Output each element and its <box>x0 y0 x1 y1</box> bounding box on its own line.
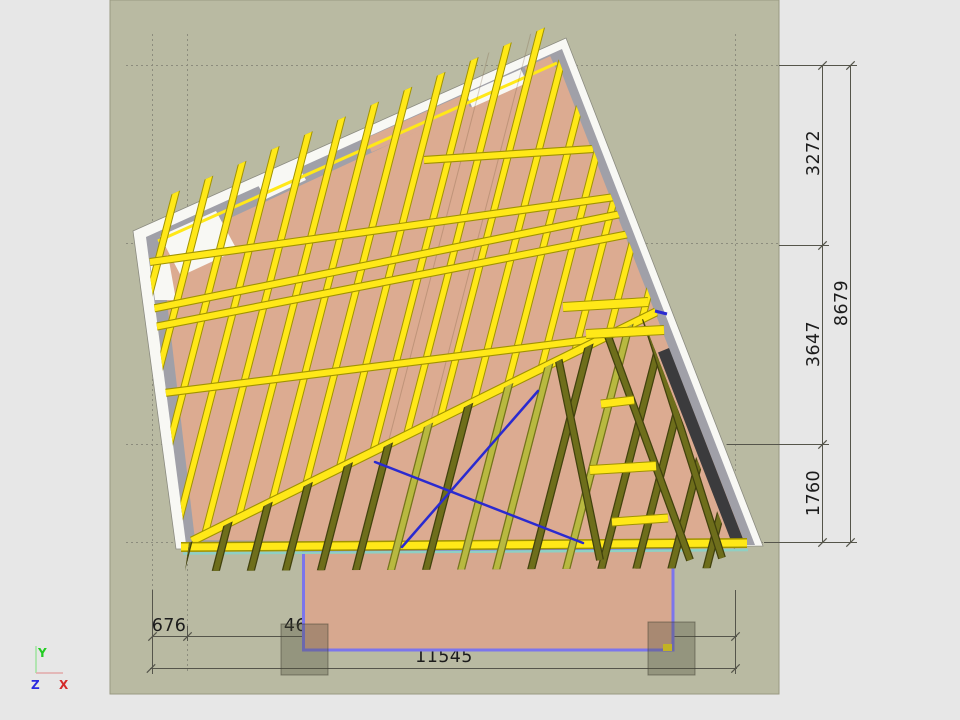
dimension-label-right-seg3[interactable]: 1760 <box>804 470 824 516</box>
dimension-label-right-seg2[interactable]: 3647 <box>804 321 824 367</box>
model-viewport[interactable]: 676 46 11545 3272 3647 1760 8679 Y Z X <box>0 0 960 720</box>
axis-label-y: Y <box>37 646 47 660</box>
application-window: 676 46 11545 3272 3647 1760 8679 Y Z X <box>0 0 960 720</box>
dimension-label-bottom-seg1[interactable]: 676 <box>152 616 187 636</box>
axis-label-z: Z <box>31 678 40 692</box>
footing-pad-left[interactable] <box>281 624 328 675</box>
footing-pad-right[interactable] <box>648 622 695 675</box>
dimension-label-right-total[interactable]: 8679 <box>832 280 852 326</box>
dimension-label-right-seg1[interactable]: 3272 <box>804 130 824 176</box>
axis-label-x: X <box>59 678 69 692</box>
